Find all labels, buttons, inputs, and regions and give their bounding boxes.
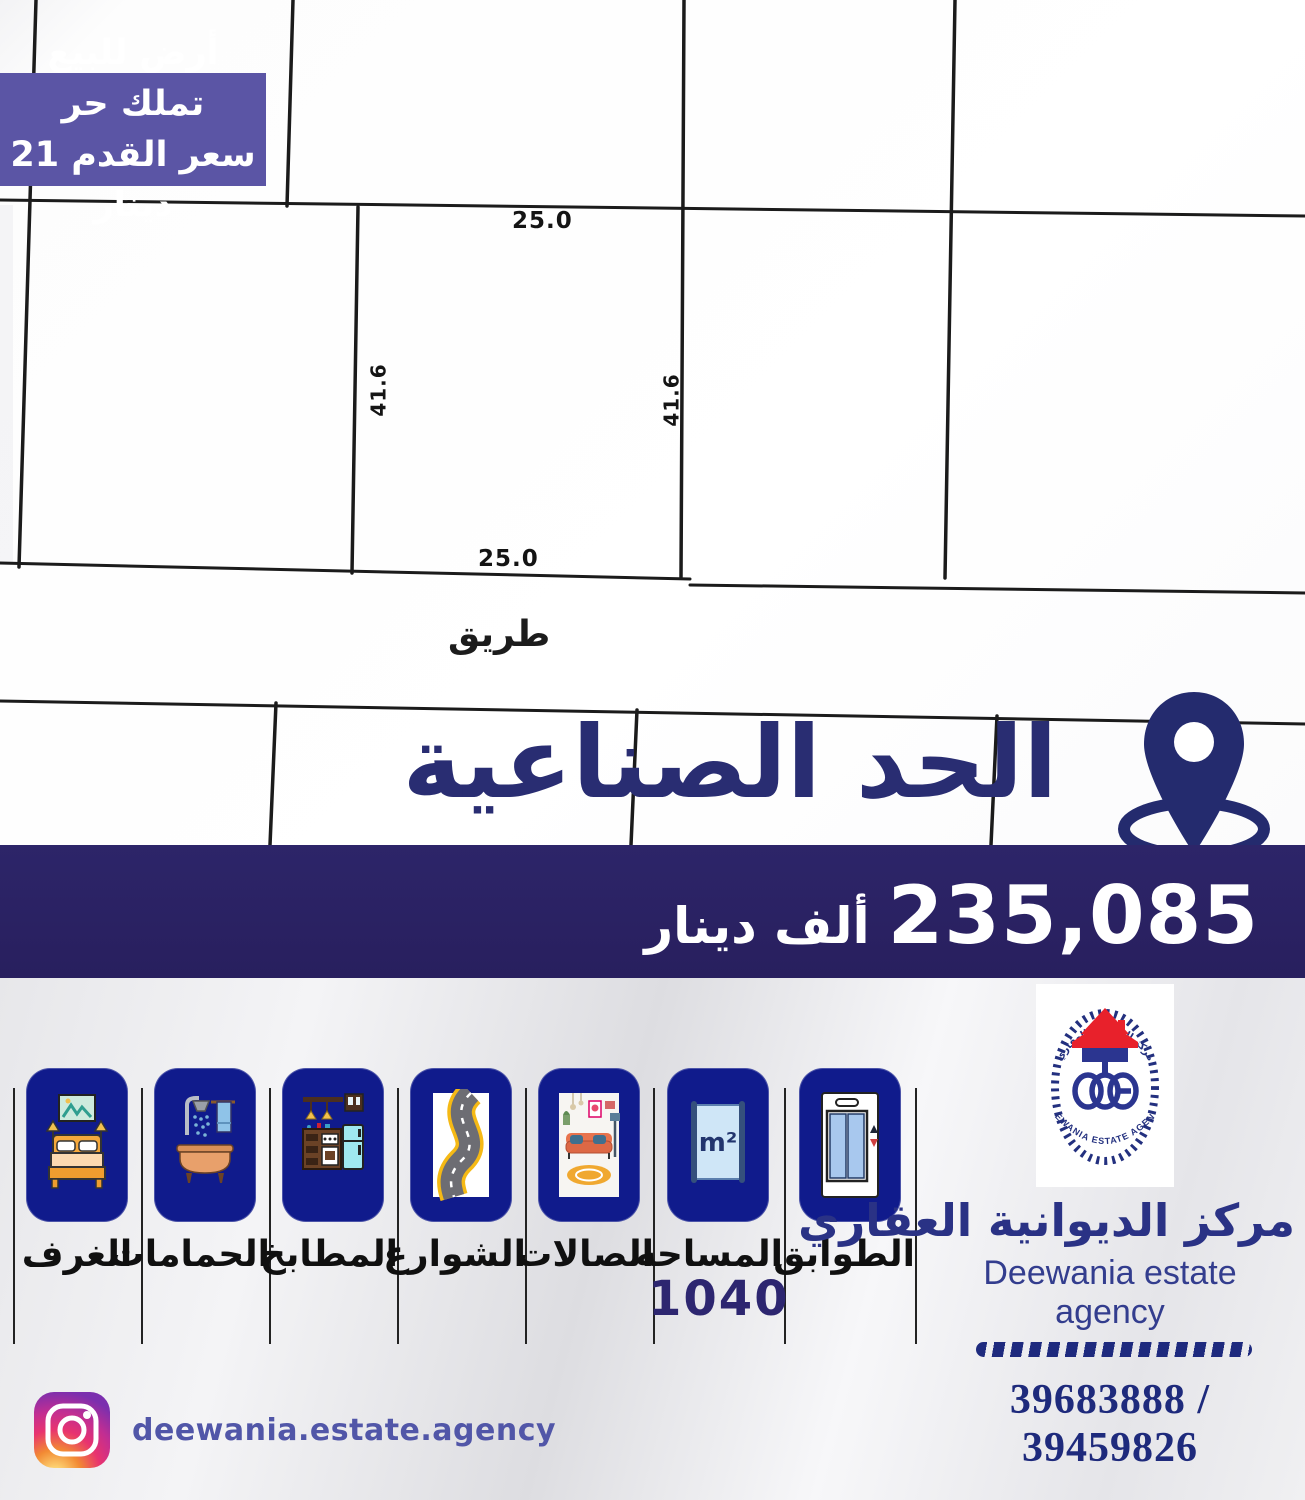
sale-badge-line2: سعر القدم 21 دينار (0, 130, 266, 232)
elevator-icon (813, 1089, 887, 1201)
m2-symbol: m² (699, 1128, 737, 1158)
dimension-left: 41.6 (367, 363, 391, 416)
road-label: طريق (448, 614, 550, 655)
feature-tile-bathrooms (154, 1068, 256, 1222)
details-section: m² الغرف الحمامات المطابخ الشوارع الصالا… (0, 978, 1305, 1500)
price-unit: ألف دينار (644, 897, 869, 955)
plot-map: أرض للبيع تملك حر سعر القدم 21 دينار 25.… (0, 0, 1305, 845)
column-divider (13, 1088, 15, 1344)
living-room-icon (552, 1089, 626, 1201)
feature-tile-halls (538, 1068, 640, 1222)
dimension-top: 25.0 (512, 208, 573, 234)
area-m2-icon: m² (681, 1089, 755, 1201)
deewania-estate-agency-logo: مركز الديوانية العقاري DEEWANIA ESTATE A… (1036, 984, 1174, 1187)
location-title: الحد الصناعية (360, 703, 1100, 823)
feature-label-streets: الشوارع (396, 1234, 526, 1275)
sale-badge-line1: أرض للبيع تملك حر (0, 28, 266, 130)
column-divider (525, 1088, 527, 1344)
feature-label-area: المساحه (653, 1234, 783, 1275)
column-divider (397, 1088, 399, 1344)
real-estate-flyer: أرض للبيع تملك حر سعر القدم 21 دينار 25.… (0, 0, 1305, 1500)
agency-name-arabic: مركز الديوانية العقاري (925, 1194, 1295, 1247)
agency-name-english: Deewania estate agency (925, 1254, 1295, 1332)
feature-tile-area: m² (667, 1068, 769, 1222)
feature-label-bathrooms: الحمامات (140, 1234, 270, 1275)
feature-tile-rooms (26, 1068, 128, 1222)
feature-value-area: 1040 (648, 1271, 788, 1327)
price-amount: 235,085 (888, 869, 1259, 962)
instagram-handle: deewania.estate.agency (132, 1413, 556, 1448)
bedroom-icon (40, 1089, 114, 1201)
column-divider (141, 1088, 143, 1344)
feature-tile-kitchens (282, 1068, 384, 1222)
dimension-bottom: 25.0 (478, 546, 539, 572)
price-band: 235,085 ألف دينار (0, 845, 1305, 978)
social-row: deewania.estate.agency (34, 1392, 556, 1468)
feature-tile-streets (410, 1068, 512, 1222)
location-pin-icon (1108, 686, 1280, 868)
dimension-right: 41.6 (660, 373, 684, 426)
bathroom-icon (168, 1089, 242, 1201)
agency-logo-emblem: مركز الديوانية العقاري DEEWANIA ESTATE A… (1036, 984, 1174, 1187)
instagram-camera-glyph (34, 1392, 110, 1468)
road-icon (424, 1089, 498, 1201)
phone-numbers: 39683888 / 39459826 (925, 1376, 1295, 1472)
instagram-icon (34, 1392, 110, 1468)
feature-label-kitchens: المطابخ (268, 1234, 398, 1275)
rope-divider (976, 1342, 1252, 1357)
sale-badge: أرض للبيع تملك حر سعر القدم 21 دينار (0, 73, 266, 186)
kitchen-icon (296, 1089, 370, 1201)
column-divider (269, 1088, 271, 1344)
